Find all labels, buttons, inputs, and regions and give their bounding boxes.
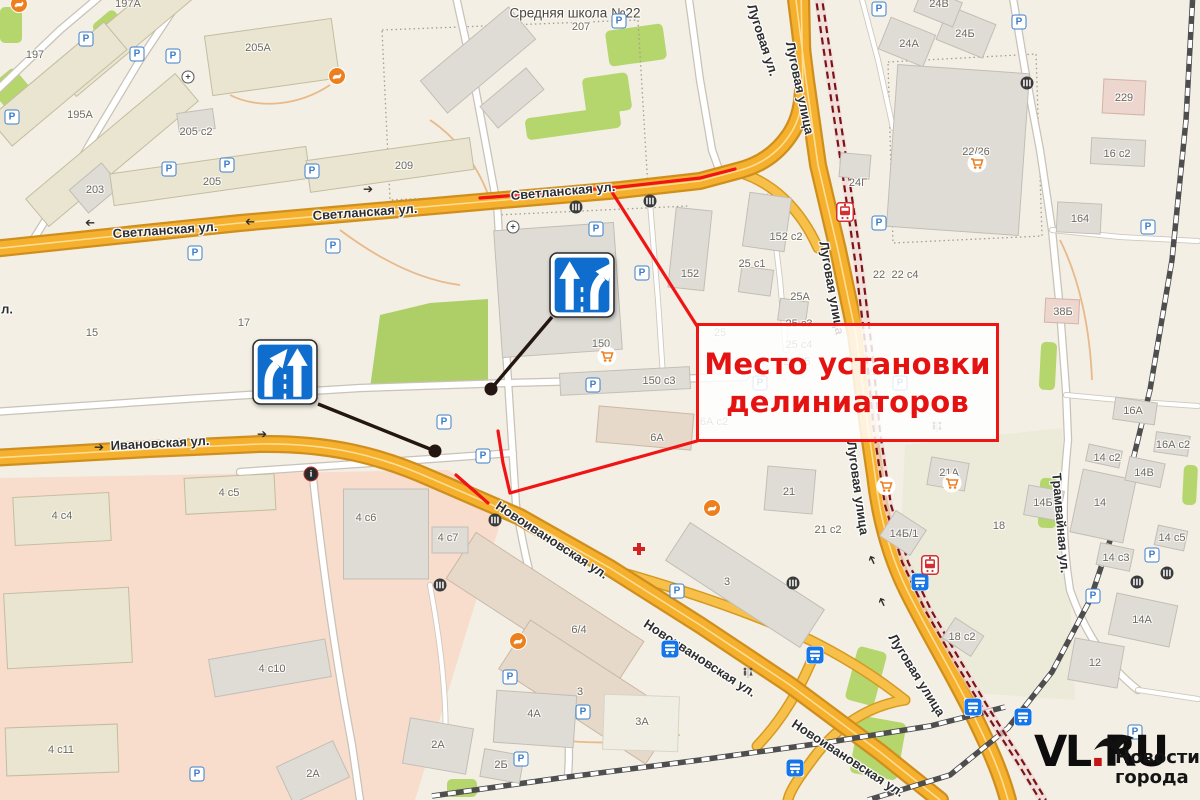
shop-icon (967, 153, 987, 173)
street-label: Ивановская ул. (110, 433, 210, 453)
road-direction-arrow-icon: ➔ (363, 183, 373, 195)
building-label: 152 с2 (769, 231, 802, 243)
parking-icon: P (576, 705, 591, 720)
building-label: 2А (306, 768, 319, 780)
building-label: 16А с2 (1156, 439, 1190, 451)
vlru-watermark: VL.RU Новости города (1030, 726, 1200, 798)
parking-icon: P (162, 162, 177, 177)
bus-stop-icon (806, 646, 824, 664)
building-label: 22 с4 (892, 269, 919, 281)
street-label: Новоивановская ул. (493, 498, 611, 582)
parking-icon: P (190, 767, 205, 782)
building-label: 16А (1123, 405, 1143, 417)
building-label: 209 (395, 160, 413, 172)
building-label: 14А (1132, 614, 1152, 626)
bus-stop-icon (1014, 708, 1032, 726)
bus-stop-icon (661, 640, 679, 658)
building-label: 21 с2 (815, 524, 842, 536)
annotation-text-line1: Место установки (704, 345, 990, 383)
street-label: Луговая улица (816, 240, 847, 336)
road-direction-arrow-icon: ➔ (864, 553, 879, 567)
lane-direction-sign-left (252, 339, 318, 405)
road-direction-arrow-icon: ➔ (874, 595, 889, 609)
parking-icon: P (514, 752, 529, 767)
dog-park-icon (703, 499, 721, 517)
parking-icon: P (437, 415, 452, 430)
building-label: 3 (724, 576, 730, 588)
building-label: 17 (238, 317, 250, 329)
parking-icon: P (476, 449, 491, 464)
building-label: 152 (681, 268, 699, 280)
parking-icon: P (586, 378, 601, 393)
building-label: 6А (650, 432, 663, 444)
parking-icon: P (79, 32, 94, 47)
street-label: Светланская ул. (312, 201, 418, 223)
building-label: 4 с5 (219, 487, 240, 499)
crosswalk-icon (434, 579, 447, 592)
parking-icon: P (589, 222, 604, 237)
crosswalk-icon (1161, 567, 1174, 580)
building-label: 4 с11 (48, 744, 74, 756)
street-label: Луговая улица (783, 40, 817, 136)
dog-park-icon (509, 632, 527, 650)
building-label: 3 (577, 686, 583, 698)
building-label: 4 с7 (438, 532, 459, 544)
building-label: 205А (245, 42, 271, 54)
building-label: 4 с6 (356, 512, 377, 524)
annotation-box: Место установки делиниаторов (696, 323, 999, 442)
parking-icon: P (503, 670, 518, 685)
parking-icon: P (1086, 589, 1101, 604)
crosswalk-icon (489, 514, 502, 527)
lane-direction-sign-right (549, 252, 615, 318)
building-label: 150 с3 (642, 375, 675, 387)
traffic-signal-icon: + (182, 71, 195, 84)
tram-stop-icon (921, 555, 939, 575)
crosswalk-icon (644, 195, 657, 208)
building-label: 195А (67, 109, 93, 121)
building-label: 197 (26, 49, 44, 61)
building-label: 164 (1071, 213, 1089, 225)
parking-icon: P (1145, 548, 1160, 563)
building-label: 207 (572, 21, 590, 33)
parking-icon: P (1141, 220, 1156, 235)
info-icon: i (304, 467, 319, 482)
street-label: Светланская ул. (112, 219, 218, 241)
building-label: 14Б/1 (890, 528, 919, 540)
shop-icon (876, 476, 896, 496)
building-label: 25А (790, 291, 810, 303)
parking-icon: P (670, 584, 685, 599)
parking-icon: P (872, 2, 887, 17)
building-label: 14 с5 (1159, 532, 1186, 544)
street-label: Луговая ул. (744, 2, 781, 78)
street-label: Трамвайная ул. (1049, 472, 1073, 573)
street-label: Луговая улица (844, 440, 872, 536)
building-label: 203 (86, 184, 104, 196)
crosswalk-icon (787, 577, 800, 590)
parking-icon: P (166, 49, 181, 64)
bus-stop-icon (911, 573, 929, 591)
building-label: 22 (873, 269, 885, 281)
building-label: 205 (203, 176, 221, 188)
building-label: 14Б (1033, 497, 1052, 509)
building-label: 14В (1134, 467, 1154, 479)
building-label: 4А (527, 708, 540, 720)
building-label: 24В (929, 0, 949, 10)
building-label: 15 (86, 327, 98, 339)
building-label: 18 с2 (949, 631, 976, 643)
shop-icon (942, 473, 962, 493)
building-label: 38Б (1053, 306, 1072, 318)
map-screenshot: Светланская ул.Светланская ул.Светланска… (0, 0, 1200, 800)
shop-icon (597, 346, 617, 366)
dog-park-icon (328, 67, 346, 85)
parking-icon: P (872, 216, 887, 231)
crosswalk-icon (1021, 77, 1034, 90)
parking-icon: P (305, 164, 320, 179)
building-label: 205 с2 (179, 126, 212, 138)
crosswalk-icon (570, 201, 583, 214)
road-direction-arrow-icon: ➔ (94, 441, 104, 453)
building-label: 229 (1115, 92, 1133, 104)
crosswalk-icon (1131, 576, 1144, 589)
bus-stop-icon (786, 759, 804, 777)
parking-icon: P (130, 47, 145, 62)
parking-icon: P (635, 266, 650, 281)
street-label: Новоивановская ул. (641, 616, 759, 700)
bus-stop-icon (964, 698, 982, 716)
road-direction-arrow-icon: ➔ (85, 217, 95, 229)
road-direction-arrow-icon: ➔ (257, 428, 267, 440)
dog-park-icon (10, 0, 28, 13)
annotation-text-line2: делиниаторов (726, 383, 969, 421)
building-label: 21 (783, 486, 795, 498)
street-label: Новоивановская ул. (789, 716, 907, 800)
building-label: 14 с3 (1103, 552, 1130, 564)
road-direction-arrow-icon: ➔ (245, 216, 255, 228)
building-label: 16 с2 (1104, 148, 1131, 160)
building-label: 18 (993, 520, 1005, 532)
building-label: 24Б (955, 28, 974, 40)
street-label: л. (1, 302, 13, 317)
street-label: Светланская ул. (510, 179, 616, 203)
building-label: 197А (115, 0, 141, 10)
building-label: 25 с1 (739, 258, 766, 270)
building-label: 24А (899, 38, 919, 50)
parking-icon: P (612, 14, 627, 29)
building-label: 2Б (494, 759, 507, 771)
map-labels-layer: Светланская ул.Светланская ул.Светланска… (0, 0, 1200, 800)
building-label: 3А (635, 716, 648, 728)
parking-icon: P (326, 239, 341, 254)
building-label: 6/4 (571, 624, 586, 636)
parking-icon: P (188, 246, 203, 261)
tram-stop-icon (836, 202, 854, 222)
building-label: 2А (431, 739, 444, 751)
building-label: 4 с10 (259, 663, 286, 675)
building-label: 14 (1094, 497, 1106, 509)
vlru-tagline: Новости города (1115, 748, 1200, 788)
parking-icon: P (5, 110, 20, 125)
parking-icon: P (220, 158, 235, 173)
building-label: 14 с2 (1094, 452, 1121, 464)
street-label: Луговая улица (886, 631, 949, 719)
parking-icon: P (1012, 15, 1027, 30)
traffic-signal-icon: + (507, 221, 520, 234)
medical-cross-icon (632, 542, 646, 556)
building-label: 24Г (849, 177, 867, 189)
building-label: 4 с4 (52, 510, 73, 522)
toilet-icon (741, 667, 755, 679)
building-label: 12 (1089, 657, 1101, 669)
